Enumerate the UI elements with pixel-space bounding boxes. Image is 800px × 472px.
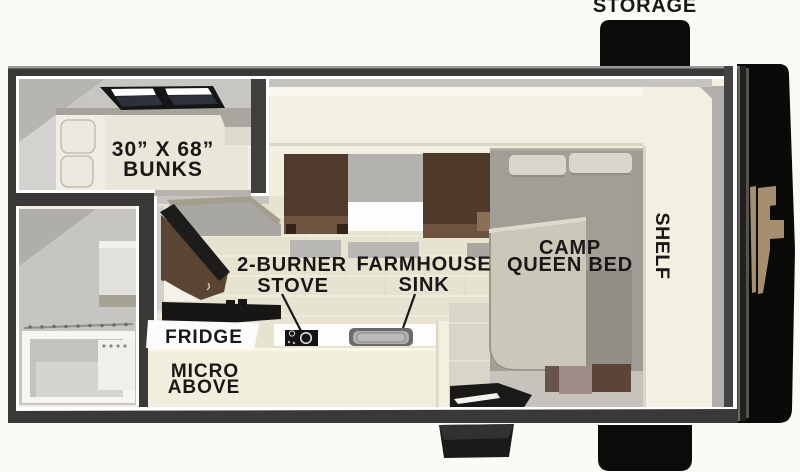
svg-text:STOVE: STOVE: [257, 275, 328, 297]
svg-text:FARMHOUSE: FARMHOUSE: [357, 254, 492, 276]
svg-text:QUEEN BED: QUEEN BED: [507, 254, 633, 276]
svg-text:BUNKS: BUNKS: [123, 158, 203, 181]
svg-text:ABOVE: ABOVE: [168, 377, 241, 398]
svg-text:2-BURNER: 2-BURNER: [237, 254, 347, 276]
svg-text:SINK: SINK: [399, 274, 450, 296]
svg-text:STORAGE: STORAGE: [593, 0, 697, 17]
svg-text:SHELF: SHELF: [651, 213, 673, 280]
svg-text:FRIDGE: FRIDGE: [165, 327, 243, 348]
